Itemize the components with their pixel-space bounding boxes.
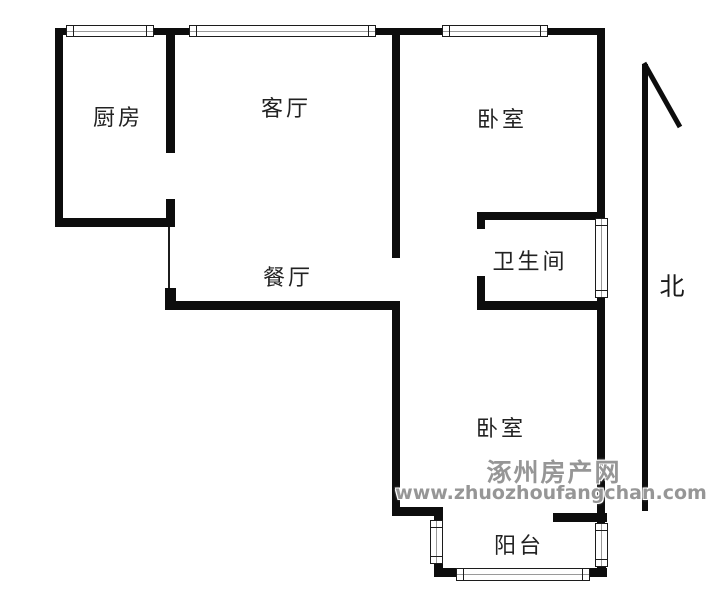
north-arrow-icon: [0, 0, 707, 600]
window-bedroom-north: [442, 25, 548, 37]
window-kitchen-north: [66, 25, 154, 37]
window-balcony-west: [430, 520, 443, 564]
window-balcony-east: [595, 523, 608, 567]
room-label-bathroom: 卫生间: [492, 244, 567, 276]
room-label-kitchen: 厨房: [93, 100, 143, 132]
room-label-living-room: 客厅: [261, 91, 311, 123]
room-label-balcony: 阳台: [494, 528, 544, 560]
window-living-north: [189, 25, 376, 37]
watermark-site-url: www.zhuozhoufangchan.com: [395, 482, 707, 504]
room-label-bedroom-north: 卧室: [477, 102, 527, 134]
room-label-bedroom-south: 卧室: [476, 411, 526, 443]
window-balcony-south: [456, 568, 590, 581]
floor-plan: 厨房 客厅 卧室 卫生间 餐厅 卧室 阳台 北 涿州房产网 www.zhuozh…: [0, 0, 707, 600]
room-label-dining-room: 餐厅: [263, 260, 313, 292]
window-bathroom-east: [595, 218, 608, 298]
compass-north-label: 北: [659, 267, 684, 303]
